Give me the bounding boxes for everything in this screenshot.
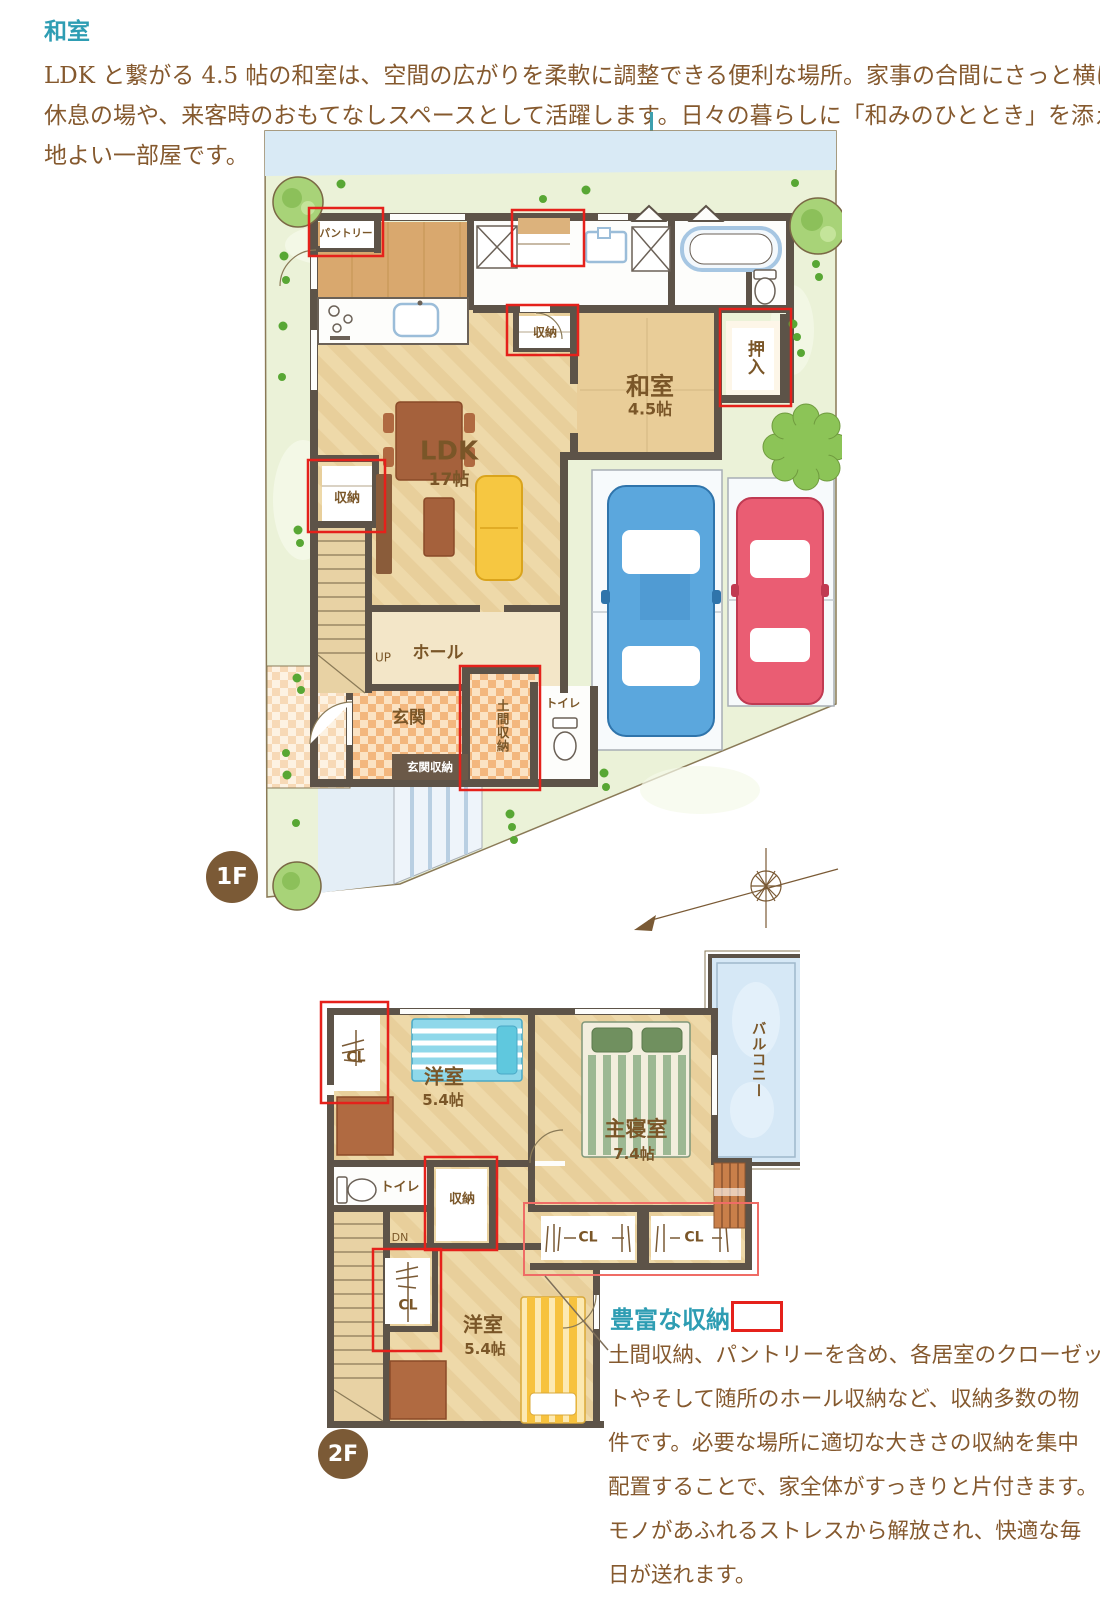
label-room1: 洋室 (424, 1067, 464, 1088)
washbasin-icon (586, 228, 626, 262)
toilet-icon-1f (553, 718, 577, 760)
section-heading-washitsu: 和室 (44, 12, 90, 46)
kitchen-counter (318, 298, 468, 344)
bathtub-icon (682, 228, 780, 270)
stairs-2f (334, 1212, 383, 1421)
paragraph-line: 休息の場や、来客時のおもてなしスペースとして活躍します。日々の暮らしに「和みのひ… (44, 96, 1100, 130)
paragraph-line: LDK と繋がる 4.5 帖の和室は、空間の広がりを柔軟に調整できる便利な場所。… (44, 56, 1100, 90)
label-room2-size: 5.4帖 (464, 1342, 506, 1358)
label-room1-size: 5.4帖 (422, 1093, 464, 1109)
label-room2: 洋室 (463, 1315, 503, 1336)
compass-icon (634, 848, 838, 931)
label-washitsu: 和室 (626, 374, 674, 399)
label-genkan: 玄関 (392, 710, 426, 728)
entrance-steps (318, 784, 482, 893)
label-master: 主寝室 (605, 1118, 668, 1140)
sofa (476, 476, 522, 580)
car-red (731, 498, 829, 704)
desk-room1 (337, 1097, 393, 1155)
label-ldk: LDK (420, 438, 478, 465)
label-cl-bottom: CL (398, 1299, 417, 1314)
toilet-icon-bath (754, 270, 776, 304)
label-cl-top: CL (346, 1051, 365, 1066)
label-up: UP (375, 652, 391, 665)
paragraph-line: 件です。必要な場所に適切な大きさの収納を集中 (608, 1426, 1079, 1457)
red-box-legend (731, 1301, 783, 1332)
floorplan-1f (258, 126, 842, 938)
car-blue (601, 486, 721, 736)
toilet-icon-2f (337, 1177, 376, 1203)
bed-yellow (521, 1297, 585, 1423)
desk-room2 (390, 1361, 446, 1419)
label-oshiire: 押入 (744, 340, 762, 376)
label-closet-mid: 収納 (533, 327, 557, 340)
brochure-page: 和室 LDK と繋がる 4.5 帖の和室は、空間の広がりを柔軟に調整できる便利な… (0, 0, 1100, 1597)
paragraph-line: モノがあふれるストレスから解放され、快適な毎 (608, 1514, 1081, 1545)
floor-badge-2f: 2F (318, 1429, 368, 1479)
paragraph-line: トやそして随所のホール収納など、収納多数の物 (608, 1382, 1079, 1413)
label-pantry: パントリー (319, 228, 372, 239)
label-genkan-storage: 玄関収納 (407, 761, 453, 773)
label-master-size: 7.4帖 (613, 1147, 655, 1163)
label-ldk-size: 17帖 (429, 472, 470, 490)
label-doma-storage: 土間収納 (495, 699, 508, 753)
label-closet-2f: 収納 (449, 1193, 475, 1207)
label-dn: DN (392, 1232, 409, 1244)
label-closet-left: 収納 (334, 492, 360, 506)
paragraph-line: 土間収納、パントリーを含め、各居室のクローゼッ (608, 1338, 1100, 1369)
section-heading-storage: 豊富な収納 (610, 1300, 730, 1335)
paragraph-line: 配置することで、家全体がすっきりと片付きます。 (608, 1470, 1098, 1501)
floor-badge-1f: 1F (206, 851, 258, 903)
label-cl-master-right: CL (684, 1231, 703, 1246)
label-balcony: バルコニー (749, 1021, 764, 1099)
label-toilet-1f: トイレ (546, 697, 581, 709)
label-cl-master-left: CL (578, 1231, 597, 1246)
stairs-1f (318, 528, 365, 693)
paragraph-line: 日が送れます。 (608, 1558, 756, 1589)
label-toilet-2f: トイレ (380, 1181, 419, 1195)
paragraph-line: 地よい一部屋です。 (44, 136, 249, 170)
label-hall: ホール (413, 645, 464, 663)
coffee-table (424, 498, 454, 556)
shower-icon (632, 227, 670, 271)
louver-strip (714, 1163, 745, 1228)
label-washitsu-size: 4.5帖 (628, 402, 672, 419)
